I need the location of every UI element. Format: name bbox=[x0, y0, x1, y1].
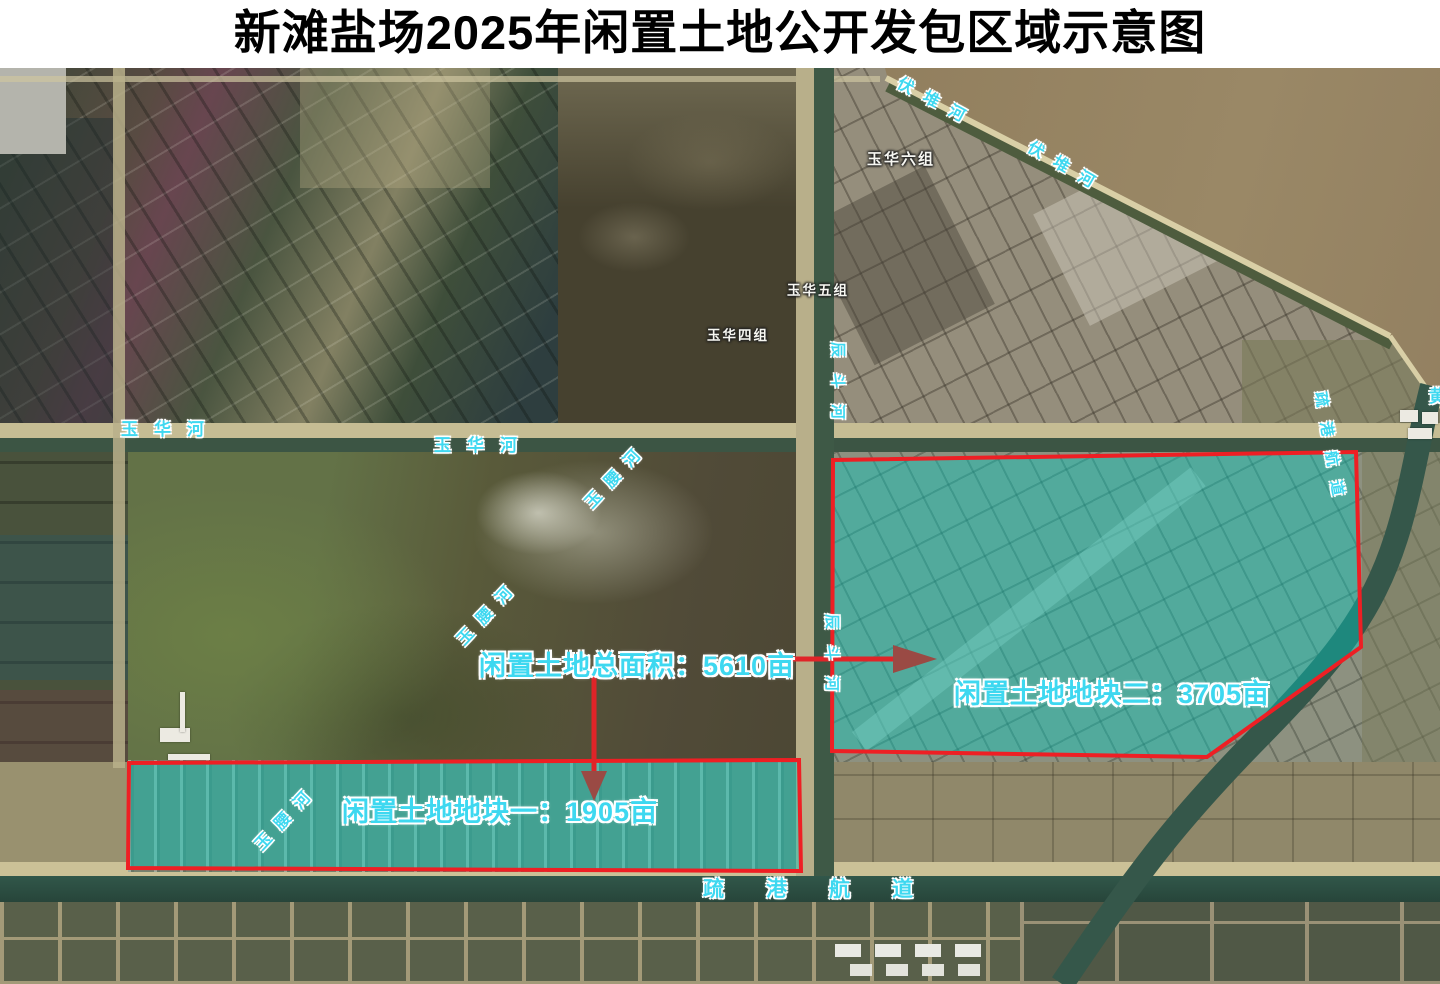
chendou-river-label-2: 辰斗河 bbox=[822, 614, 843, 707]
yuhua-river-label-west: 玉华河 bbox=[121, 415, 220, 440]
village-label-yuhua5: 玉华五组 bbox=[787, 279, 849, 299]
yuhua-river-label-east: 玉华河 bbox=[434, 431, 533, 456]
right-edge-building-2 bbox=[1422, 412, 1438, 424]
plot2-label: 闲置土地地块二：3705亩 bbox=[954, 672, 1270, 711]
right-edge-building-1 bbox=[1400, 410, 1418, 422]
right-edge-building-3 bbox=[1408, 428, 1432, 439]
shugang-channel-label-south: 疏港航道 bbox=[703, 873, 955, 903]
total-area-label: 闲置土地总面积：5610亩 bbox=[479, 644, 795, 683]
satellite-map: 闲置土地总面积：5610亩 闲置土地地块二：3705亩 闲置土地地块一：1905… bbox=[0, 68, 1440, 984]
schematic-map-page: 新滩盐场2025年闲置土地公开发包区域示意图 bbox=[0, 0, 1440, 984]
title-bar: 新滩盐场2025年闲置土地公开发包区域示意图 bbox=[0, 0, 1440, 68]
page-title: 新滩盐场2025年闲置土地公开发包区域示意图 bbox=[0, 0, 1440, 66]
yellow-sea-partial-label: 黄 bbox=[1429, 382, 1440, 407]
village-label-yuhua4: 玉华四组 bbox=[707, 324, 769, 344]
village-label-yuhua6: 玉华六组 bbox=[867, 148, 935, 169]
plot1-label: 闲置土地地块一：1905亩 bbox=[342, 790, 658, 829]
map-overlay-graphics bbox=[0, 68, 1440, 984]
chendou-river-label-1: 辰斗河 bbox=[828, 342, 849, 435]
